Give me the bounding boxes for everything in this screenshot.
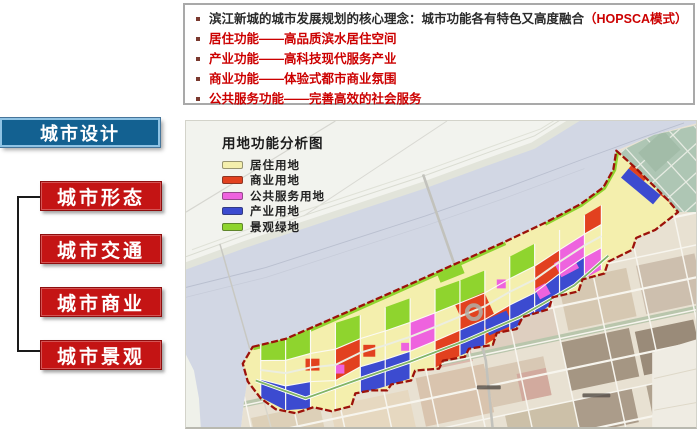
map-label-mark [477, 385, 501, 389]
legend-label: 公共服务用地 [250, 188, 325, 204]
map-label-mark [582, 393, 610, 397]
bullet-square-icon [196, 97, 200, 101]
sidebar-item-urban-commerce[interactable]: 城市商业 [40, 287, 162, 317]
legend-item: 公共服务用地 [222, 188, 325, 204]
nav-bracket-top [17, 196, 41, 198]
legend-swatch [222, 207, 243, 215]
concept-bullet-item: 居住功能——高品质滨水居住空间 [193, 31, 685, 47]
legend-item: 商业用地 [222, 173, 325, 189]
legend-item: 产业用地 [222, 204, 325, 220]
slide: 滨江新城的城市发展规划的核心理念：城市功能各有特色又高度融合（HOPSCA模式）… [0, 0, 700, 434]
nav-bracket-bottom [17, 350, 41, 352]
legend-label: 景观绿地 [250, 219, 300, 235]
key-concept-panel: 滨江新城的城市发展规划的核心理念：城市功能各有特色又高度融合（HOPSCA模式）… [183, 3, 695, 105]
sidebar-item-urban-form[interactable]: 城市形态 [40, 181, 162, 211]
open-land [652, 339, 697, 429]
concept-bullet-item: 产业功能——高科技现代服务产业 [193, 51, 685, 67]
legend-swatch [222, 161, 243, 169]
map-title: 用地功能分析图 [222, 132, 324, 152]
legend-item: 景观绿地 [222, 219, 325, 235]
legend-label: 居住用地 [250, 157, 300, 173]
legend-label: 商业用地 [250, 172, 300, 188]
concept-bullet-item: 滨江新城的城市发展规划的核心理念：城市功能各有特色又高度融合（HOPSCA模式） [193, 11, 685, 27]
concept-bullet-text: 商业功能——体验式都市商业氛围 [209, 71, 397, 87]
sidebar-item-urban-landscape[interactable]: 城市景观 [40, 340, 162, 370]
map-legend: 居住用地商业用地公共服务用地产业用地景观绿地 [222, 157, 325, 235]
legend-item: 居住用地 [222, 157, 325, 173]
concept-bullet-text: 产业功能——高科技现代服务产业 [209, 51, 397, 67]
legend-swatch [222, 192, 243, 200]
sidebar-item-urban-traffic[interactable]: 城市交通 [40, 234, 162, 264]
concept-bullet-item: 公共服务功能——完善高效的社会服务 [193, 91, 685, 107]
concept-bullet-item: 商业功能——体验式都市商业氛围 [193, 71, 685, 87]
hopsca-highlight: （HOPSCA模式） [584, 12, 687, 26]
bullet-square-icon [196, 17, 200, 21]
legend-label: 产业用地 [250, 203, 300, 219]
land-use-map-panel: 用地功能分析图 居住用地商业用地公共服务用地产业用地景观绿地 [185, 120, 697, 429]
concept-bullet-text: 居住功能——高品质滨水居住空间 [209, 31, 397, 47]
legend-swatch [222, 176, 243, 184]
concept-line1: 滨江新城的城市发展规划的核心理念：城市功能各有特色又高度融合（HOPSCA模式） [209, 11, 688, 27]
bullet-square-icon [196, 77, 200, 81]
legend-swatch [222, 223, 243, 231]
bullet-square-icon [196, 57, 200, 61]
concept-bullet-text: 公共服务功能——完善高效的社会服务 [209, 91, 422, 107]
nav-bracket-line [17, 196, 19, 352]
section-title: 城市设计 [0, 118, 160, 147]
bullet-square-icon [196, 37, 200, 41]
